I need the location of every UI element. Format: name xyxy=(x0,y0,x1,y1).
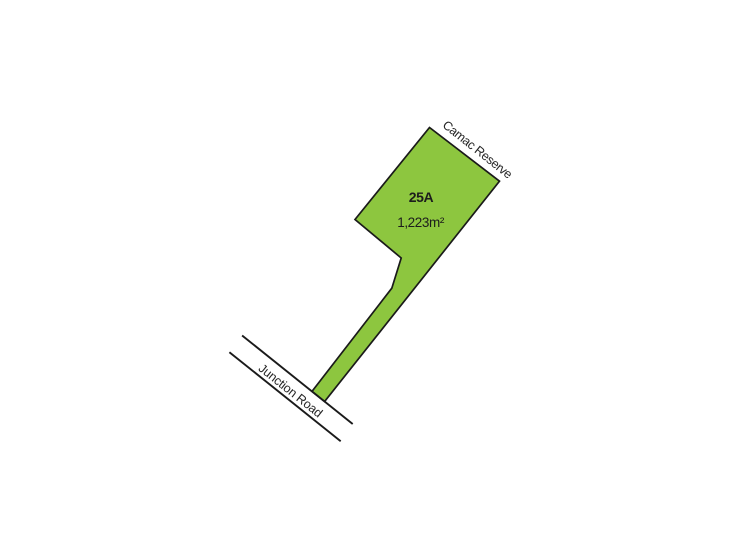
svg-text:1,223m²: 1,223m² xyxy=(397,215,445,230)
svg-text:25A: 25A xyxy=(409,189,434,205)
